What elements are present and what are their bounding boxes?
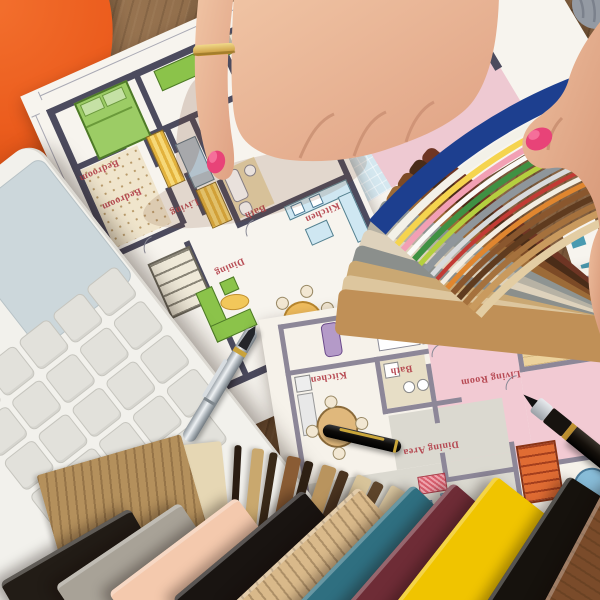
photo-stage: Bedroom Bedroom Hall Living Bath Kitchen… [0,0,600,600]
pen-ring-gold [393,440,399,453]
plan2-bed [374,309,421,351]
plan-fixture-teal [569,233,586,249]
plan2-bathtub-purple [320,321,343,357]
